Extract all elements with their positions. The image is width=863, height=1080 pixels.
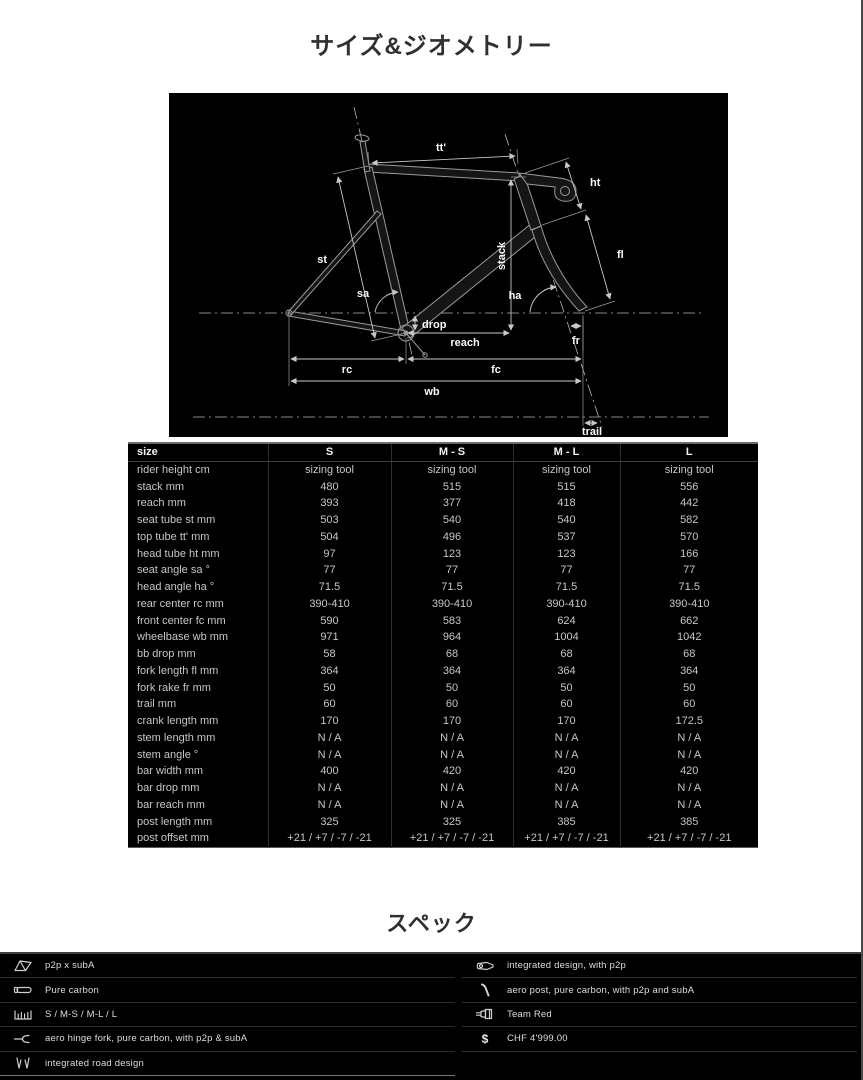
row-label: top tube tt' mm: [128, 529, 268, 546]
cell-value: 68: [513, 646, 620, 663]
fork-blade: [532, 226, 587, 311]
cell-value: 172.5: [620, 713, 758, 730]
paint-icon: [471, 1006, 499, 1022]
spec-label: CHF 4'999.00: [507, 1033, 568, 1044]
table-row: bb drop mm58686868: [128, 646, 758, 663]
row-label: fork length fl mm: [128, 663, 268, 680]
cell-value: 418: [513, 495, 620, 512]
seat-tube-label: st: [317, 254, 327, 266]
cell-value: 1042: [620, 629, 758, 646]
top-tube-label: tt': [436, 142, 446, 154]
cell-value: 590: [268, 613, 391, 630]
row-label: head angle ha °: [128, 579, 268, 596]
table-row: head angle ha °71.571.571.571.5: [128, 579, 758, 596]
frame-icon: [9, 958, 37, 974]
column-header: M - S: [391, 443, 513, 461]
spec-row: integrated design, with p2p: [462, 954, 857, 978]
cell-value: 77: [391, 562, 513, 579]
spec-label: aero hinge fork, pure carbon, with p2p &…: [45, 1033, 247, 1044]
spec-row: S / M-S / M-L / L: [0, 1003, 455, 1027]
cell-value: 170: [513, 713, 620, 730]
cell-value: 50: [391, 680, 513, 697]
cell-value: 170: [268, 713, 391, 730]
top-tube-dimension: [372, 156, 515, 163]
fork-length-label: fl: [617, 249, 624, 261]
row-label: crank length mm: [128, 713, 268, 730]
table-row: seat tube st mm503540540582: [128, 512, 758, 529]
wheelbase-label: wb: [423, 386, 440, 398]
size-table-header-row: sizeSM - SM - LL: [128, 443, 758, 461]
reach-label: reach: [450, 337, 480, 349]
cell-value: 420: [391, 763, 513, 780]
cell-value: 60: [620, 696, 758, 713]
cell-value: +21 / +7 / -7 / -21: [268, 830, 391, 847]
spec-label: aero post, pure carbon, with p2p and sub…: [507, 985, 694, 996]
sizing-tool-link[interactable]: sizing tool: [391, 461, 513, 478]
cell-value: 442: [620, 495, 758, 512]
cell-value: +21 / +7 / -7 / -21: [620, 830, 758, 847]
cell-value: 583: [391, 613, 513, 630]
cell-value: 1004: [513, 629, 620, 646]
row-label: rear center rc mm: [128, 596, 268, 613]
head-angle-label: ha: [509, 290, 523, 302]
spec-section: p2p x subAPure carbonS / M-S / M-L / Lae…: [0, 952, 863, 1080]
spec-section-title: スペック: [0, 906, 863, 938]
table-row: seat angle sa °77777777: [128, 562, 758, 579]
cell-value: 390-410: [268, 596, 391, 613]
price-icon: $: [471, 1032, 499, 1046]
spec-label: S / M-S / M-L / L: [45, 1009, 117, 1020]
cell-value: N / A: [620, 747, 758, 764]
row-label: bb drop mm: [128, 646, 268, 663]
cell-value: 556: [620, 479, 758, 496]
cell-value: 390-410: [513, 596, 620, 613]
spec-row: aero post, pure carbon, with p2p and sub…: [462, 978, 857, 1002]
row-label: bar reach mm: [128, 797, 268, 814]
table-row: reach mm393377418442: [128, 495, 758, 512]
table-row: front center fc mm590583624662: [128, 613, 758, 630]
spec-row: aero hinge fork, pure carbon, with p2p &…: [0, 1027, 455, 1051]
cell-value: 582: [620, 512, 758, 529]
table-row: top tube tt' mm504496537570: [128, 529, 758, 546]
stem-icon: [471, 958, 499, 974]
table-row: bar reach mmN / AN / AN / AN / A: [128, 797, 758, 814]
cell-value: 390-410: [620, 596, 758, 613]
cell-value: N / A: [268, 780, 391, 797]
product-geometry-page: サイズ&ジオメトリー: [0, 0, 863, 1080]
cell-value: 964: [391, 629, 513, 646]
cell-value: 77: [513, 562, 620, 579]
crank-arm: [406, 333, 425, 355]
fork-icon: [9, 1031, 37, 1047]
stack-label: stack: [496, 241, 508, 270]
table-row: post length mm325325385385: [128, 814, 758, 831]
head-angle-arc: [530, 287, 556, 312]
cell-value: 71.5: [620, 579, 758, 596]
row-label: bar drop mm: [128, 780, 268, 797]
cell-value: +21 / +7 / -7 / -21: [513, 830, 620, 847]
cell-value: 364: [268, 663, 391, 680]
top-tube: [368, 164, 519, 181]
cell-value: 97: [268, 546, 391, 563]
cell-value: 480: [268, 479, 391, 496]
row-label: stem length mm: [128, 730, 268, 747]
row-label: stack mm: [128, 479, 268, 496]
geometry-section-title: サイズ&ジオメトリー: [0, 26, 863, 61]
row-label: rider height cm: [128, 461, 268, 478]
table-row: crank length mm170170170172.5: [128, 713, 758, 730]
cell-value: 662: [620, 613, 758, 630]
bike-frame-diagram-svg: tt' ht fl st stack sa ha: [169, 93, 728, 437]
cell-value: 504: [268, 529, 391, 546]
cell-value: 537: [513, 529, 620, 546]
spec-row: Pure carbon: [0, 978, 455, 1002]
cell-value: 364: [513, 663, 620, 680]
table-row: bar width mm400420420420: [128, 763, 758, 780]
trail-label: trail: [582, 426, 602, 437]
cell-value: N / A: [268, 797, 391, 814]
rear-center-label: rc: [342, 364, 352, 376]
chain-stay: [288, 311, 406, 336]
cell-value: 123: [391, 546, 513, 563]
row-label: wheelbase wb mm: [128, 629, 268, 646]
sizing-tool-link[interactable]: sizing tool: [620, 461, 758, 478]
seat-tube: [364, 167, 410, 334]
row-label: seat angle sa °: [128, 562, 268, 579]
cell-value: 123: [513, 546, 620, 563]
cell-value: 50: [268, 680, 391, 697]
cell-value: N / A: [391, 747, 513, 764]
table-row: fork rake fr mm50505050: [128, 680, 758, 697]
sizes-icon: [9, 1006, 37, 1022]
cell-value: 170: [391, 713, 513, 730]
cell-value: N / A: [268, 730, 391, 747]
cell-value: 77: [268, 562, 391, 579]
seat-tube-dimension: [338, 177, 375, 338]
sizing-tool-link[interactable]: sizing tool: [268, 461, 391, 478]
cell-value: 50: [513, 680, 620, 697]
spec-label: p2p x subA: [45, 960, 95, 971]
size-geometry-table: sizeSM - SM - LL rider height cmsizing t…: [128, 442, 758, 848]
spec-label: integrated road design: [45, 1058, 144, 1069]
cell-value: 60: [513, 696, 620, 713]
cell-value: N / A: [620, 730, 758, 747]
table-row: rider height cmsizing toolsizing toolsiz…: [128, 461, 758, 478]
cell-value: 390-410: [391, 596, 513, 613]
cell-value: 71.5: [513, 579, 620, 596]
cell-value: 325: [268, 814, 391, 831]
column-header: M - L: [513, 443, 620, 461]
cell-value: 68: [620, 646, 758, 663]
cell-value: 60: [268, 696, 391, 713]
spec-row: $CHF 4'999.00: [462, 1027, 857, 1051]
cell-value: N / A: [620, 780, 758, 797]
cell-value: 400: [268, 763, 391, 780]
cell-value: 71.5: [391, 579, 513, 596]
table-row: rear center rc mm390-410390-410390-41039…: [128, 596, 758, 613]
spec-col-left: p2p x subAPure carbonS / M-S / M-L / Lae…: [0, 954, 455, 1076]
cell-value: N / A: [513, 730, 620, 747]
table-row: bar drop mmN / AN / AN / AN / A: [128, 780, 758, 797]
cell-value: N / A: [391, 780, 513, 797]
spec-label: Team Red: [507, 1009, 552, 1020]
table-row: trail mm60606060: [128, 696, 758, 713]
table-row: stem angle °N / AN / AN / AN / A: [128, 747, 758, 764]
cell-value: 393: [268, 495, 391, 512]
spec-row: integrated road design: [0, 1052, 455, 1076]
saddle-clamp: [355, 134, 370, 142]
cell-value: 515: [513, 479, 620, 496]
table-row: stem length mmN / AN / AN / AN / A: [128, 730, 758, 747]
cell-value: N / A: [513, 780, 620, 797]
cell-value: 420: [620, 763, 758, 780]
spec-label: Pure carbon: [45, 985, 99, 996]
cell-value: 971: [268, 629, 391, 646]
size-table-body: rider height cmsizing toolsizing toolsiz…: [128, 461, 758, 847]
bb-drop-label: drop: [422, 319, 447, 331]
cell-value: +21 / +7 / -7 / -21: [391, 830, 513, 847]
column-header: S: [268, 443, 391, 461]
row-label: trail mm: [128, 696, 268, 713]
cell-value: 385: [513, 814, 620, 831]
tube-icon: [9, 982, 37, 998]
cell-value: 325: [391, 814, 513, 831]
cell-value: 166: [620, 546, 758, 563]
row-label: reach mm: [128, 495, 268, 512]
cell-value: N / A: [513, 797, 620, 814]
spec-row: Team Red: [462, 1003, 857, 1027]
table-row: post offset mm+21 / +7 / -7 / -21+21 / +…: [128, 830, 758, 847]
cell-value: 58: [268, 646, 391, 663]
column-header: L: [620, 443, 758, 461]
row-label: front center fc mm: [128, 613, 268, 630]
row-label: fork rake fr mm: [128, 680, 268, 697]
head-tube-label: ht: [590, 177, 601, 189]
cell-value: 540: [513, 512, 620, 529]
fork-length-dimension: [586, 215, 610, 299]
cell-value: N / A: [513, 747, 620, 764]
cell-value: 50: [620, 680, 758, 697]
row-label: post length mm: [128, 814, 268, 831]
cell-value: N / A: [268, 747, 391, 764]
seat-angle-label: sa: [357, 288, 370, 300]
cell-value: 503: [268, 512, 391, 529]
spec-col-right: integrated design, with p2paero post, pu…: [462, 954, 857, 1052]
spec-label: integrated design, with p2p: [507, 960, 626, 971]
cell-value: 77: [620, 562, 758, 579]
frame-geometry-diagram: tt' ht fl st stack sa ha: [169, 93, 728, 437]
cell-value: N / A: [391, 730, 513, 747]
table-row: stack mm480515515556: [128, 479, 758, 496]
seatstay-icon: [9, 1055, 37, 1071]
cell-value: 377: [391, 495, 513, 512]
table-row: wheelbase wb mm97196410041042: [128, 629, 758, 646]
cell-value: N / A: [620, 797, 758, 814]
seatpost-icon: [471, 982, 499, 998]
fork-rake-label: fr: [572, 335, 581, 347]
table-row: fork length fl mm364364364364: [128, 663, 758, 680]
cell-value: 624: [513, 613, 620, 630]
cell-value: 496: [391, 529, 513, 546]
row-label: post offset mm: [128, 830, 268, 847]
table-row: head tube ht mm97123123166: [128, 546, 758, 563]
cell-value: 540: [391, 512, 513, 529]
cell-value: 385: [620, 814, 758, 831]
row-label: head tube ht mm: [128, 546, 268, 563]
cell-value: N / A: [391, 797, 513, 814]
cell-value: 420: [513, 763, 620, 780]
cell-value: 364: [620, 663, 758, 680]
cell-value: 515: [391, 479, 513, 496]
size-column-label: size: [128, 443, 268, 461]
row-label: seat tube st mm: [128, 512, 268, 529]
cell-value: 60: [391, 696, 513, 713]
front-center-label: fc: [491, 364, 501, 376]
row-label: stem angle °: [128, 747, 268, 764]
cell-value: 570: [620, 529, 758, 546]
spec-row: p2p x subA: [0, 954, 455, 978]
cell-value: 68: [391, 646, 513, 663]
cell-value: 364: [391, 663, 513, 680]
sizing-tool-link[interactable]: sizing tool: [513, 461, 620, 478]
row-label: bar width mm: [128, 763, 268, 780]
cell-value: 71.5: [268, 579, 391, 596]
